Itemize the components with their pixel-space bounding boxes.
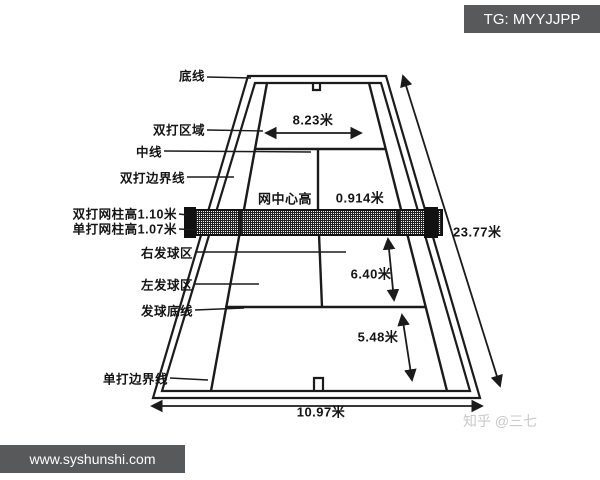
dim-singles-width: 8.23米 (293, 110, 334, 129)
dim-court-length: 23.77米 (453, 222, 502, 241)
tennis-court-diagram-page: 底线 双打区域 中线 双打边界线 双打网柱高1.10米 单打网柱高1.07米 右… (0, 0, 600, 480)
left-singles-stick (238, 211, 242, 234)
label-singles-net-post: 单打网柱高1.07米 (73, 219, 177, 238)
right-net-post (424, 207, 438, 238)
dim-service-to-baseline: 5.48米 (358, 327, 399, 346)
label-net-center-height: 网中心高 (258, 189, 312, 208)
left-net-post (184, 207, 196, 238)
zhihu-watermark: 知乎 @三七 (463, 411, 537, 431)
label-doubles-sideline: 双打边界线 (120, 168, 185, 187)
right-singles-stick (396, 211, 400, 234)
dim-doubles-width: 10.97米 (297, 402, 346, 421)
label-center-line: 中线 (136, 142, 162, 161)
net (184, 207, 442, 238)
label-service-baseline: 发球底线 (141, 301, 193, 320)
telegram-badge: TG: MYYJJPP (464, 5, 600, 33)
label-left-service-box: 左发球区 (141, 275, 193, 294)
label-doubles-area: 双打区域 (153, 120, 205, 139)
label-singles-sideline: 单打边界线 (103, 369, 168, 388)
website-badge: www.syshunshi.com (0, 445, 185, 473)
dim-net-center-height: 0.914米 (336, 188, 385, 207)
singles-sidelines (211, 83, 447, 391)
dim-net-to-service-line: 6.40米 (351, 264, 392, 283)
label-right-service-box: 右发球区 (141, 243, 193, 262)
label-baseline: 底线 (179, 66, 205, 85)
